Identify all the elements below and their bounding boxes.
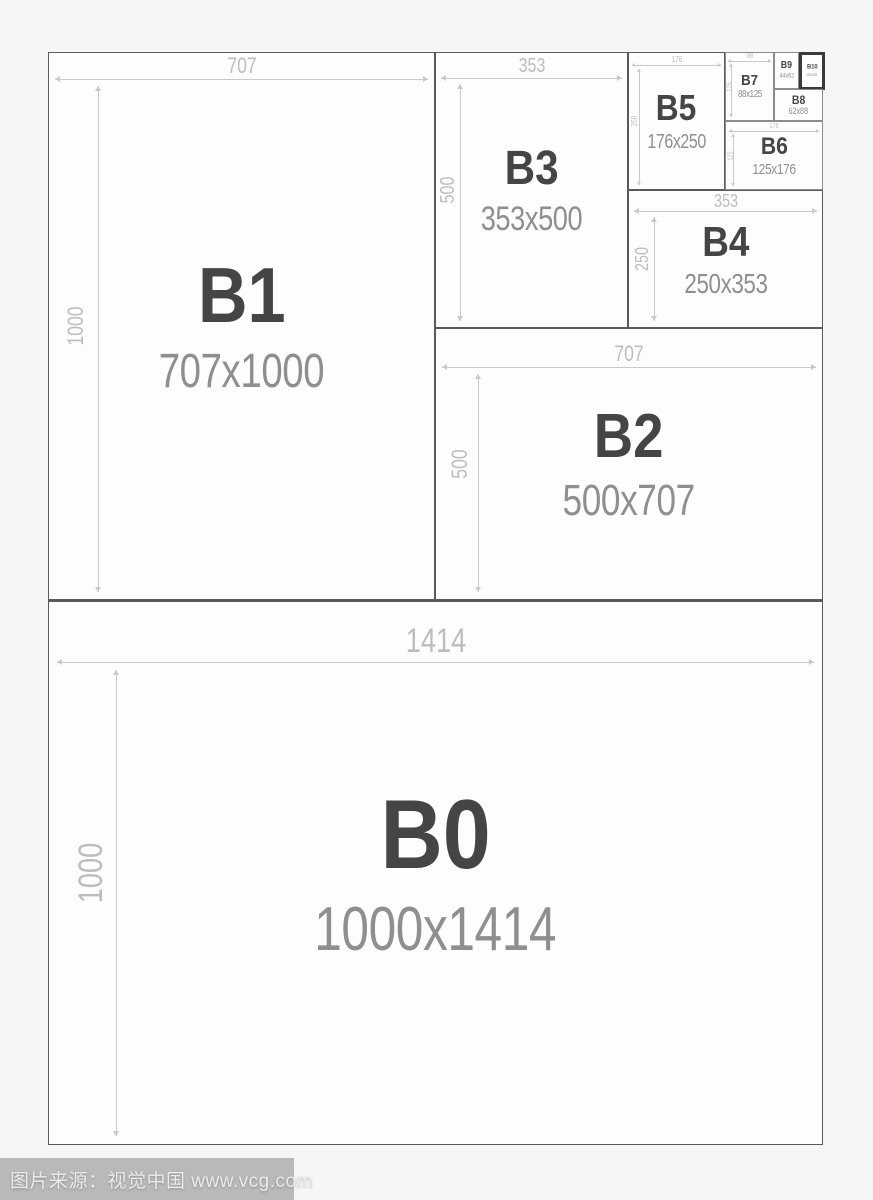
paper-size-box-b1: 707 1000 B1 707x1000: [48, 52, 435, 600]
height-dimension-line: [116, 670, 117, 1136]
paper-size-box-b8: B8 62x88: [774, 89, 823, 121]
paper-size-labels: B9 44x62: [776, 61, 798, 80]
width-dimension-label: 176: [769, 123, 778, 130]
paper-size-dimensions: 44x62: [779, 73, 794, 79]
width-dimension-label: 353: [713, 192, 737, 210]
paper-size-box-b5: 176 250 B5 176x250: [628, 52, 725, 190]
width-dimension-line: [55, 79, 428, 80]
height-dimension-label: 500: [438, 177, 458, 204]
paper-size-labels: B1 707x1000: [138, 256, 345, 396]
width-dimension-line: [728, 61, 771, 62]
paper-size-dimensions: 707x1000: [159, 348, 325, 396]
width-dimension-line: [441, 78, 622, 79]
paper-size-dimensions: 88x125: [738, 90, 762, 100]
paper-size-labels: B0 1000x1414: [284, 785, 586, 961]
height-dimension-label: 1000: [74, 843, 108, 904]
width-dimension-line: [632, 65, 721, 66]
width-dimension-line: [57, 662, 814, 663]
paper-size-box-b2: 707 500 B2 500x707: [435, 328, 823, 600]
width-dimension-line: [634, 211, 817, 212]
paper-size-name: B7: [741, 73, 758, 88]
paper-size-labels: B7 88x125: [735, 73, 765, 100]
paper-size-box-b10-highlighted: B10 31x44: [799, 52, 825, 90]
paper-size-labels: B10 31x44: [801, 63, 823, 79]
paper-size-labels: B6 125x176: [747, 135, 801, 177]
paper-size-name: B1: [198, 256, 286, 334]
paper-size-labels: B4 250x353: [674, 221, 778, 298]
paper-size-labels: B8 62x88: [786, 94, 811, 116]
paper-size-dimensions: 176x250: [647, 132, 706, 152]
paper-size-box-b4: 353 250 B4 250x353: [628, 190, 823, 328]
paper-size-box-b6: 176 125 B6 125x176: [725, 121, 823, 190]
paper-sizes-diagram: 707 1000 B1 707x1000 353 500 B3 353x500 …: [0, 0, 873, 1200]
height-dimension-line: [478, 374, 479, 592]
paper-size-box-b3: 353 500 B3 353x500: [435, 52, 628, 328]
height-dimension-label: 250: [633, 247, 651, 271]
paper-size-box-b7: 88 125 B7 88x125: [725, 52, 774, 121]
width-dimension-label: 1414: [405, 624, 466, 658]
paper-size-dimensions: 250x353: [684, 270, 767, 298]
width-dimension-label: 707: [614, 343, 643, 365]
paper-size-name: B0: [380, 785, 490, 883]
paper-size-dimensions: 62x88: [789, 107, 809, 116]
paper-size-box-b0: 1414 1000 B0 1000x1414: [48, 600, 823, 1145]
paper-size-labels: B3 353x500: [468, 145, 595, 236]
width-dimension-label: 707: [227, 55, 256, 77]
height-dimension-line: [654, 217, 655, 321]
watermark-bar: 图片来源：视觉中国 www.vcg.com: [0, 1158, 294, 1200]
width-dimension-label: 176: [671, 56, 682, 64]
height-dimension-label: 250: [631, 116, 639, 127]
paper-size-name: B3: [504, 145, 558, 193]
paper-size-dimensions: 31x44: [807, 73, 817, 77]
width-dimension-line: [442, 367, 816, 368]
height-dimension-line: [460, 84, 461, 321]
height-dimension-label: 500: [449, 449, 471, 478]
paper-size-labels: B5 176x250: [640, 90, 713, 152]
paper-size-name: B2: [594, 406, 664, 468]
paper-size-name: B4: [702, 221, 749, 263]
paper-size-name: B10: [807, 64, 818, 70]
height-dimension-line: [639, 69, 640, 185]
paper-size-labels: B2 500x707: [546, 406, 711, 523]
width-dimension-label: 353: [518, 56, 545, 76]
watermark-text: 图片来源：视觉中国 www.vcg.com: [10, 1166, 313, 1193]
height-dimension-label: 1000: [65, 306, 87, 345]
width-dimension-label: 88: [746, 53, 752, 60]
height-dimension-line: [98, 86, 99, 592]
height-dimension-label: 125: [727, 82, 734, 91]
paper-size-name: B9: [781, 61, 792, 71]
paper-size-dimensions: 500x707: [563, 479, 695, 523]
paper-size-box-b9: B9 44x62: [774, 52, 799, 89]
paper-size-dimensions: 1000x1414: [315, 899, 557, 961]
paper-size-name: B8: [792, 94, 806, 106]
paper-size-dimensions: 353x500: [481, 202, 583, 236]
paper-size-name: B6: [760, 135, 787, 159]
paper-size-dimensions: 125x176: [752, 162, 795, 177]
height-dimension-label: 125: [728, 151, 735, 160]
paper-size-name: B5: [656, 90, 697, 126]
